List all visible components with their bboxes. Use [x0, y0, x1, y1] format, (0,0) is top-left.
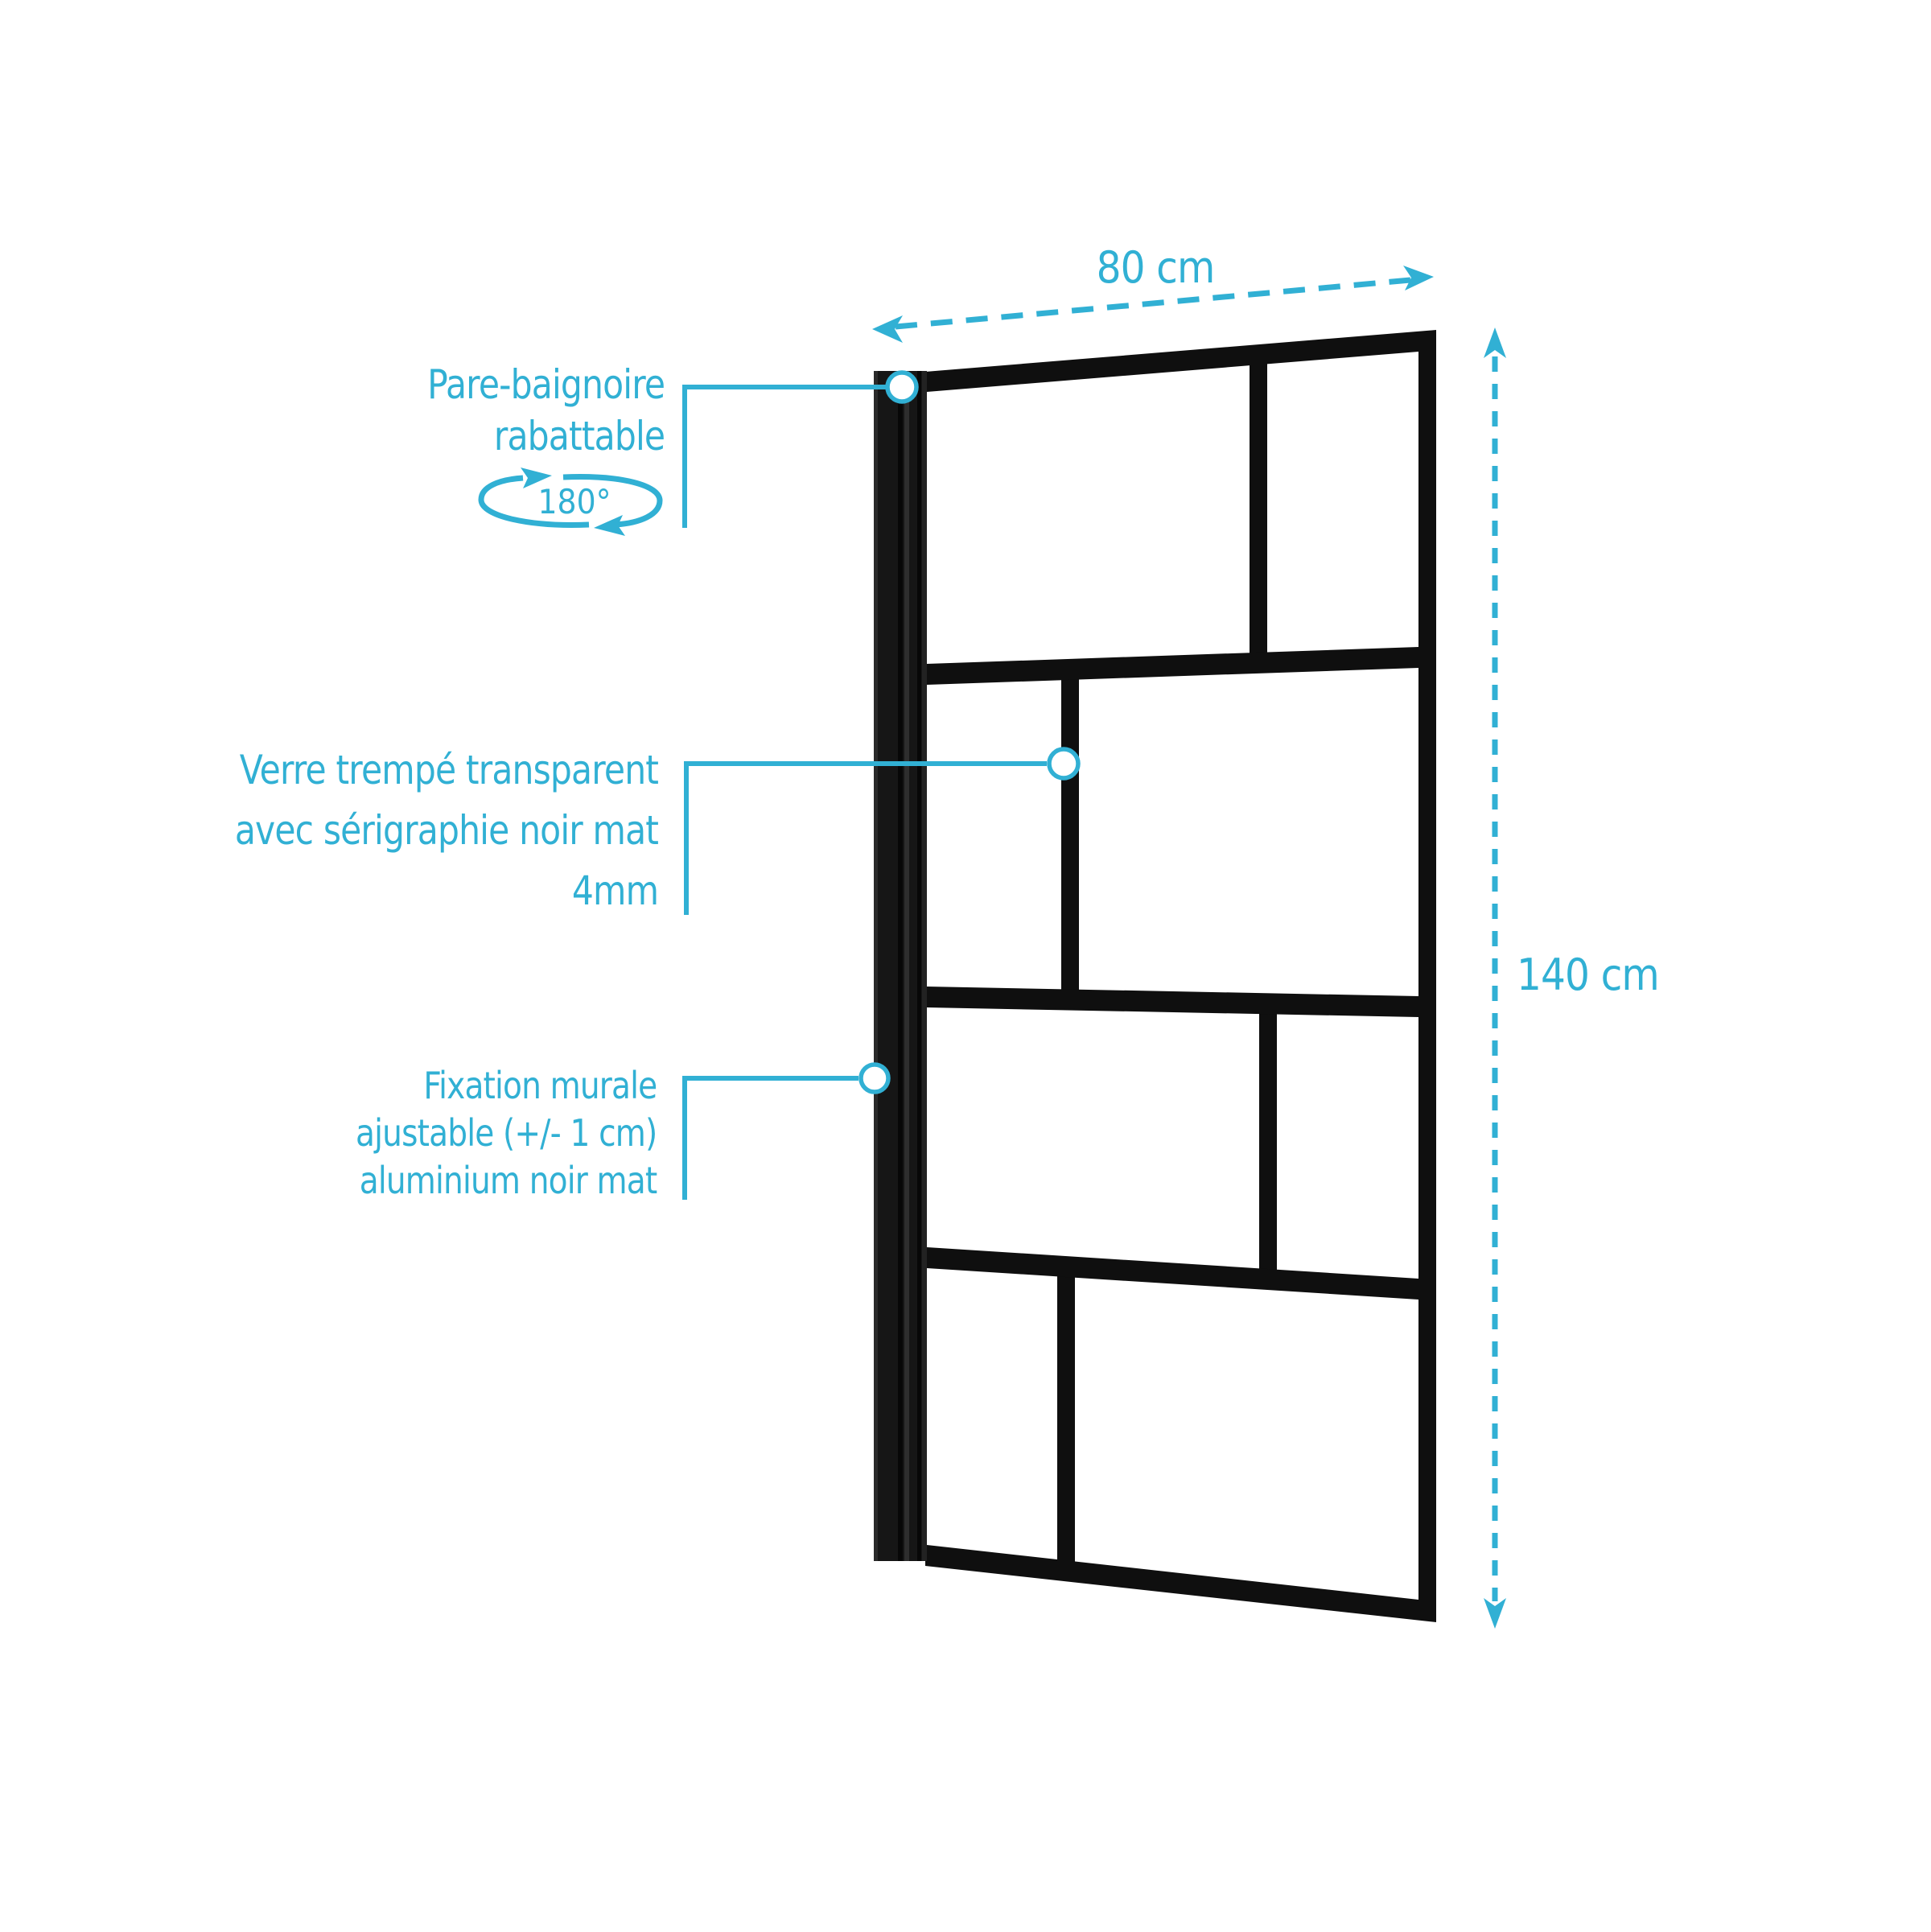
height-dimension-label: 140 cm: [1517, 950, 1659, 1000]
product-dimension-diagram: Pare-baignoire rabattable 180° Verre tre…: [0, 0, 1931, 1932]
mount-point-marker: [861, 1065, 888, 1092]
panel-muntin: [1061, 676, 1079, 994]
arrowhead-down-icon: [1484, 1598, 1506, 1629]
panel-muntin: [1057, 1273, 1075, 1563]
wall-mount-profile: [874, 371, 927, 1561]
rotation-angle-label: 180°: [537, 482, 611, 521]
width-dimension-label: 80 cm: [1097, 242, 1215, 293]
mount-callout-line: [685, 1078, 858, 1200]
hinge-point-marker: [887, 373, 916, 402]
foldable-label-line1: Pare-baignoire: [427, 359, 665, 410]
foldable-callout-line: [685, 387, 886, 528]
glass-pane: [927, 352, 1418, 1600]
panel-muntin: [1250, 363, 1267, 656]
glass-label-line1: Verre trempé transparent: [235, 740, 658, 801]
glass-label: Verre trempé transparent avec sérigraphi…: [235, 740, 658, 921]
foldable-label: Pare-baignoire rabattable: [427, 359, 665, 462]
mount-label-line1: Fixation murale: [356, 1062, 657, 1110]
panel-muntin: [1259, 1010, 1277, 1275]
mount-label-line3: aluminium noir mat: [356, 1157, 657, 1205]
mount-label: Fixation murale ajustable (+/- 1 cm) alu…: [356, 1062, 657, 1205]
glass-point-marker: [1049, 749, 1078, 778]
arrowhead-up-icon: [1484, 327, 1506, 358]
height-dimension-arrow: [1484, 327, 1506, 1629]
glass-label-line2: avec sérigraphie noir mat: [235, 801, 658, 861]
mount-label-line2: ajustable (+/- 1 cm): [356, 1110, 657, 1157]
foldable-label-line2: rabattable: [427, 410, 665, 462]
glass-panel: [925, 330, 1436, 1622]
glass-label-line3: 4mm: [235, 861, 658, 921]
